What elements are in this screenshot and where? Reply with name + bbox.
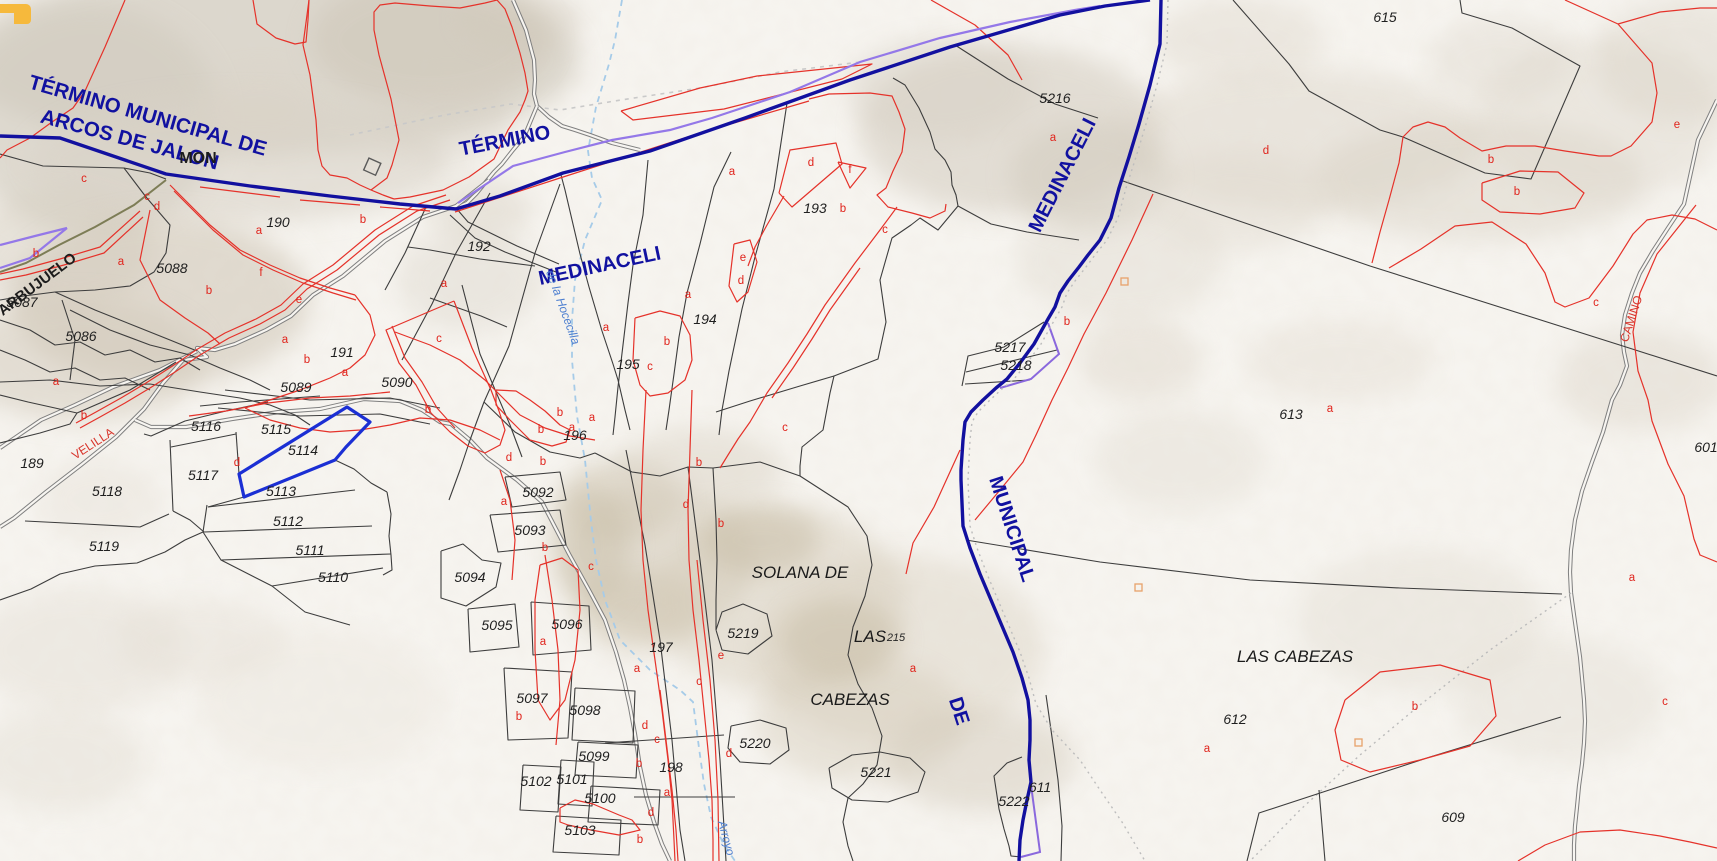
svg-text:5117: 5117	[188, 467, 219, 483]
svg-text:5110: 5110	[318, 569, 348, 585]
svg-text:c: c	[782, 422, 788, 434]
svg-text:b: b	[360, 214, 366, 226]
svg-text:5096: 5096	[551, 616, 582, 632]
svg-text:b: b	[516, 711, 522, 723]
svg-text:b: b	[637, 834, 643, 846]
svg-text:a: a	[634, 663, 641, 675]
svg-text:a: a	[53, 376, 60, 388]
svg-text:b: b	[542, 542, 548, 554]
svg-text:c: c	[696, 676, 702, 688]
svg-text:b: b	[1514, 186, 1520, 198]
svg-text:CABEZAS: CABEZAS	[810, 690, 890, 709]
svg-text:5113: 5113	[266, 483, 296, 499]
svg-text:d: d	[154, 201, 160, 213]
svg-text:a: a	[342, 367, 349, 379]
svg-text:a: a	[729, 166, 736, 178]
svg-text:5092: 5092	[522, 484, 553, 500]
svg-text:b: b	[304, 354, 310, 366]
svg-text:5086: 5086	[65, 328, 96, 344]
svg-text:d: d	[808, 157, 814, 169]
svg-text:a: a	[685, 289, 692, 301]
svg-text:d: d	[234, 457, 240, 469]
svg-text:5219: 5219	[727, 625, 758, 641]
svg-text:a: a	[1050, 132, 1057, 144]
svg-text:b: b	[664, 336, 670, 348]
svg-text:5221: 5221	[860, 764, 891, 780]
svg-text:a: a	[118, 256, 125, 268]
svg-text:5099: 5099	[578, 748, 609, 764]
svg-text:b: b	[81, 410, 87, 422]
svg-text:e: e	[1674, 119, 1680, 131]
svg-text:c: c	[1593, 297, 1599, 309]
svg-text:c: c	[1662, 696, 1668, 708]
svg-text:5111: 5111	[295, 542, 324, 558]
svg-text:c: c	[81, 173, 87, 185]
svg-text:a: a	[1629, 572, 1636, 584]
svg-text:c: c	[436, 333, 442, 345]
svg-text:5218: 5218	[1000, 357, 1031, 373]
svg-text:a: a	[441, 278, 448, 290]
svg-text:MON: MON	[179, 150, 216, 167]
svg-text:5116: 5116	[191, 418, 221, 434]
svg-text:e: e	[740, 252, 746, 264]
svg-text:d: d	[683, 499, 689, 511]
svg-text:5093: 5093	[514, 522, 545, 538]
svg-text:e: e	[718, 650, 724, 662]
svg-text:5119: 5119	[89, 538, 119, 554]
svg-text:5216: 5216	[1039, 90, 1070, 106]
svg-text:192: 192	[467, 238, 491, 254]
svg-text:5220: 5220	[739, 735, 770, 751]
svg-text:215: 215	[886, 632, 906, 644]
svg-text:b: b	[206, 285, 212, 297]
svg-text:b: b	[540, 456, 546, 468]
svg-text:d: d	[738, 275, 744, 287]
svg-text:5222: 5222	[998, 793, 1029, 809]
svg-text:c: c	[588, 561, 594, 573]
svg-text:a: a	[910, 663, 917, 675]
svg-text:a: a	[1204, 743, 1211, 755]
svg-text:194: 194	[693, 311, 717, 327]
svg-text:615: 615	[1373, 9, 1397, 25]
svg-text:190: 190	[266, 214, 290, 230]
svg-text:b: b	[696, 457, 702, 469]
svg-text:b: b	[557, 407, 563, 419]
svg-text:a: a	[569, 422, 576, 434]
svg-text:b: b	[636, 758, 642, 770]
svg-text:5095: 5095	[481, 617, 512, 633]
svg-text:b: b	[1488, 154, 1494, 166]
svg-text:d: d	[642, 720, 648, 732]
svg-text:5089: 5089	[280, 379, 311, 395]
svg-text:5112: 5112	[273, 513, 303, 529]
svg-text:5217: 5217	[994, 339, 1026, 355]
svg-text:a: a	[603, 322, 610, 334]
svg-text:601: 601	[1694, 439, 1717, 455]
svg-text:e: e	[296, 294, 302, 306]
svg-text:189: 189	[20, 455, 44, 471]
svg-text:SOLANA DE: SOLANA DE	[752, 563, 849, 582]
svg-text:a: a	[282, 334, 289, 346]
svg-text:c: c	[882, 224, 888, 236]
svg-text:5097: 5097	[516, 690, 548, 706]
svg-text:195: 195	[616, 356, 640, 372]
svg-text:609: 609	[1441, 809, 1465, 825]
svg-text:5114: 5114	[288, 442, 318, 458]
svg-text:LAS CABEZAS: LAS CABEZAS	[1237, 647, 1354, 666]
svg-text:5115: 5115	[261, 421, 291, 437]
svg-text:612: 612	[1223, 711, 1247, 727]
svg-text:a: a	[540, 636, 547, 648]
svg-text:c: c	[144, 191, 150, 203]
svg-text:LAS: LAS	[854, 627, 887, 646]
svg-text:198: 198	[659, 759, 683, 775]
svg-text:5102: 5102	[520, 773, 551, 789]
svg-text:b: b	[538, 424, 544, 436]
svg-text:5103: 5103	[564, 822, 595, 838]
svg-text:a: a	[1327, 403, 1334, 415]
svg-text:5100: 5100	[584, 790, 615, 806]
svg-text:b: b	[33, 248, 39, 260]
svg-text:613: 613	[1279, 406, 1303, 422]
svg-text:197: 197	[649, 639, 674, 655]
svg-text:a: a	[589, 412, 596, 424]
svg-text:a: a	[664, 787, 671, 799]
svg-text:b: b	[840, 203, 846, 215]
svg-text:5118: 5118	[92, 483, 122, 499]
svg-text:b: b	[1412, 701, 1418, 713]
svg-text:a: a	[501, 496, 508, 508]
svg-text:c: c	[647, 361, 653, 373]
svg-text:5090: 5090	[381, 374, 412, 390]
svg-text:5098: 5098	[569, 702, 600, 718]
svg-text:5088: 5088	[156, 260, 187, 276]
svg-text:a: a	[256, 225, 263, 237]
svg-text:b: b	[425, 404, 431, 416]
svg-text:611: 611	[1029, 779, 1051, 795]
svg-text:d: d	[506, 452, 512, 464]
svg-text:b: b	[1064, 316, 1070, 328]
svg-text:5094: 5094	[454, 569, 485, 585]
svg-text:191: 191	[330, 344, 353, 360]
svg-text:193: 193	[803, 200, 827, 216]
svg-text:c: c	[654, 734, 660, 746]
svg-text:d: d	[1263, 145, 1269, 157]
svg-text:d: d	[648, 807, 654, 819]
svg-text:b: b	[718, 518, 724, 530]
svg-text:5101: 5101	[556, 771, 587, 787]
svg-text:d: d	[726, 748, 732, 760]
